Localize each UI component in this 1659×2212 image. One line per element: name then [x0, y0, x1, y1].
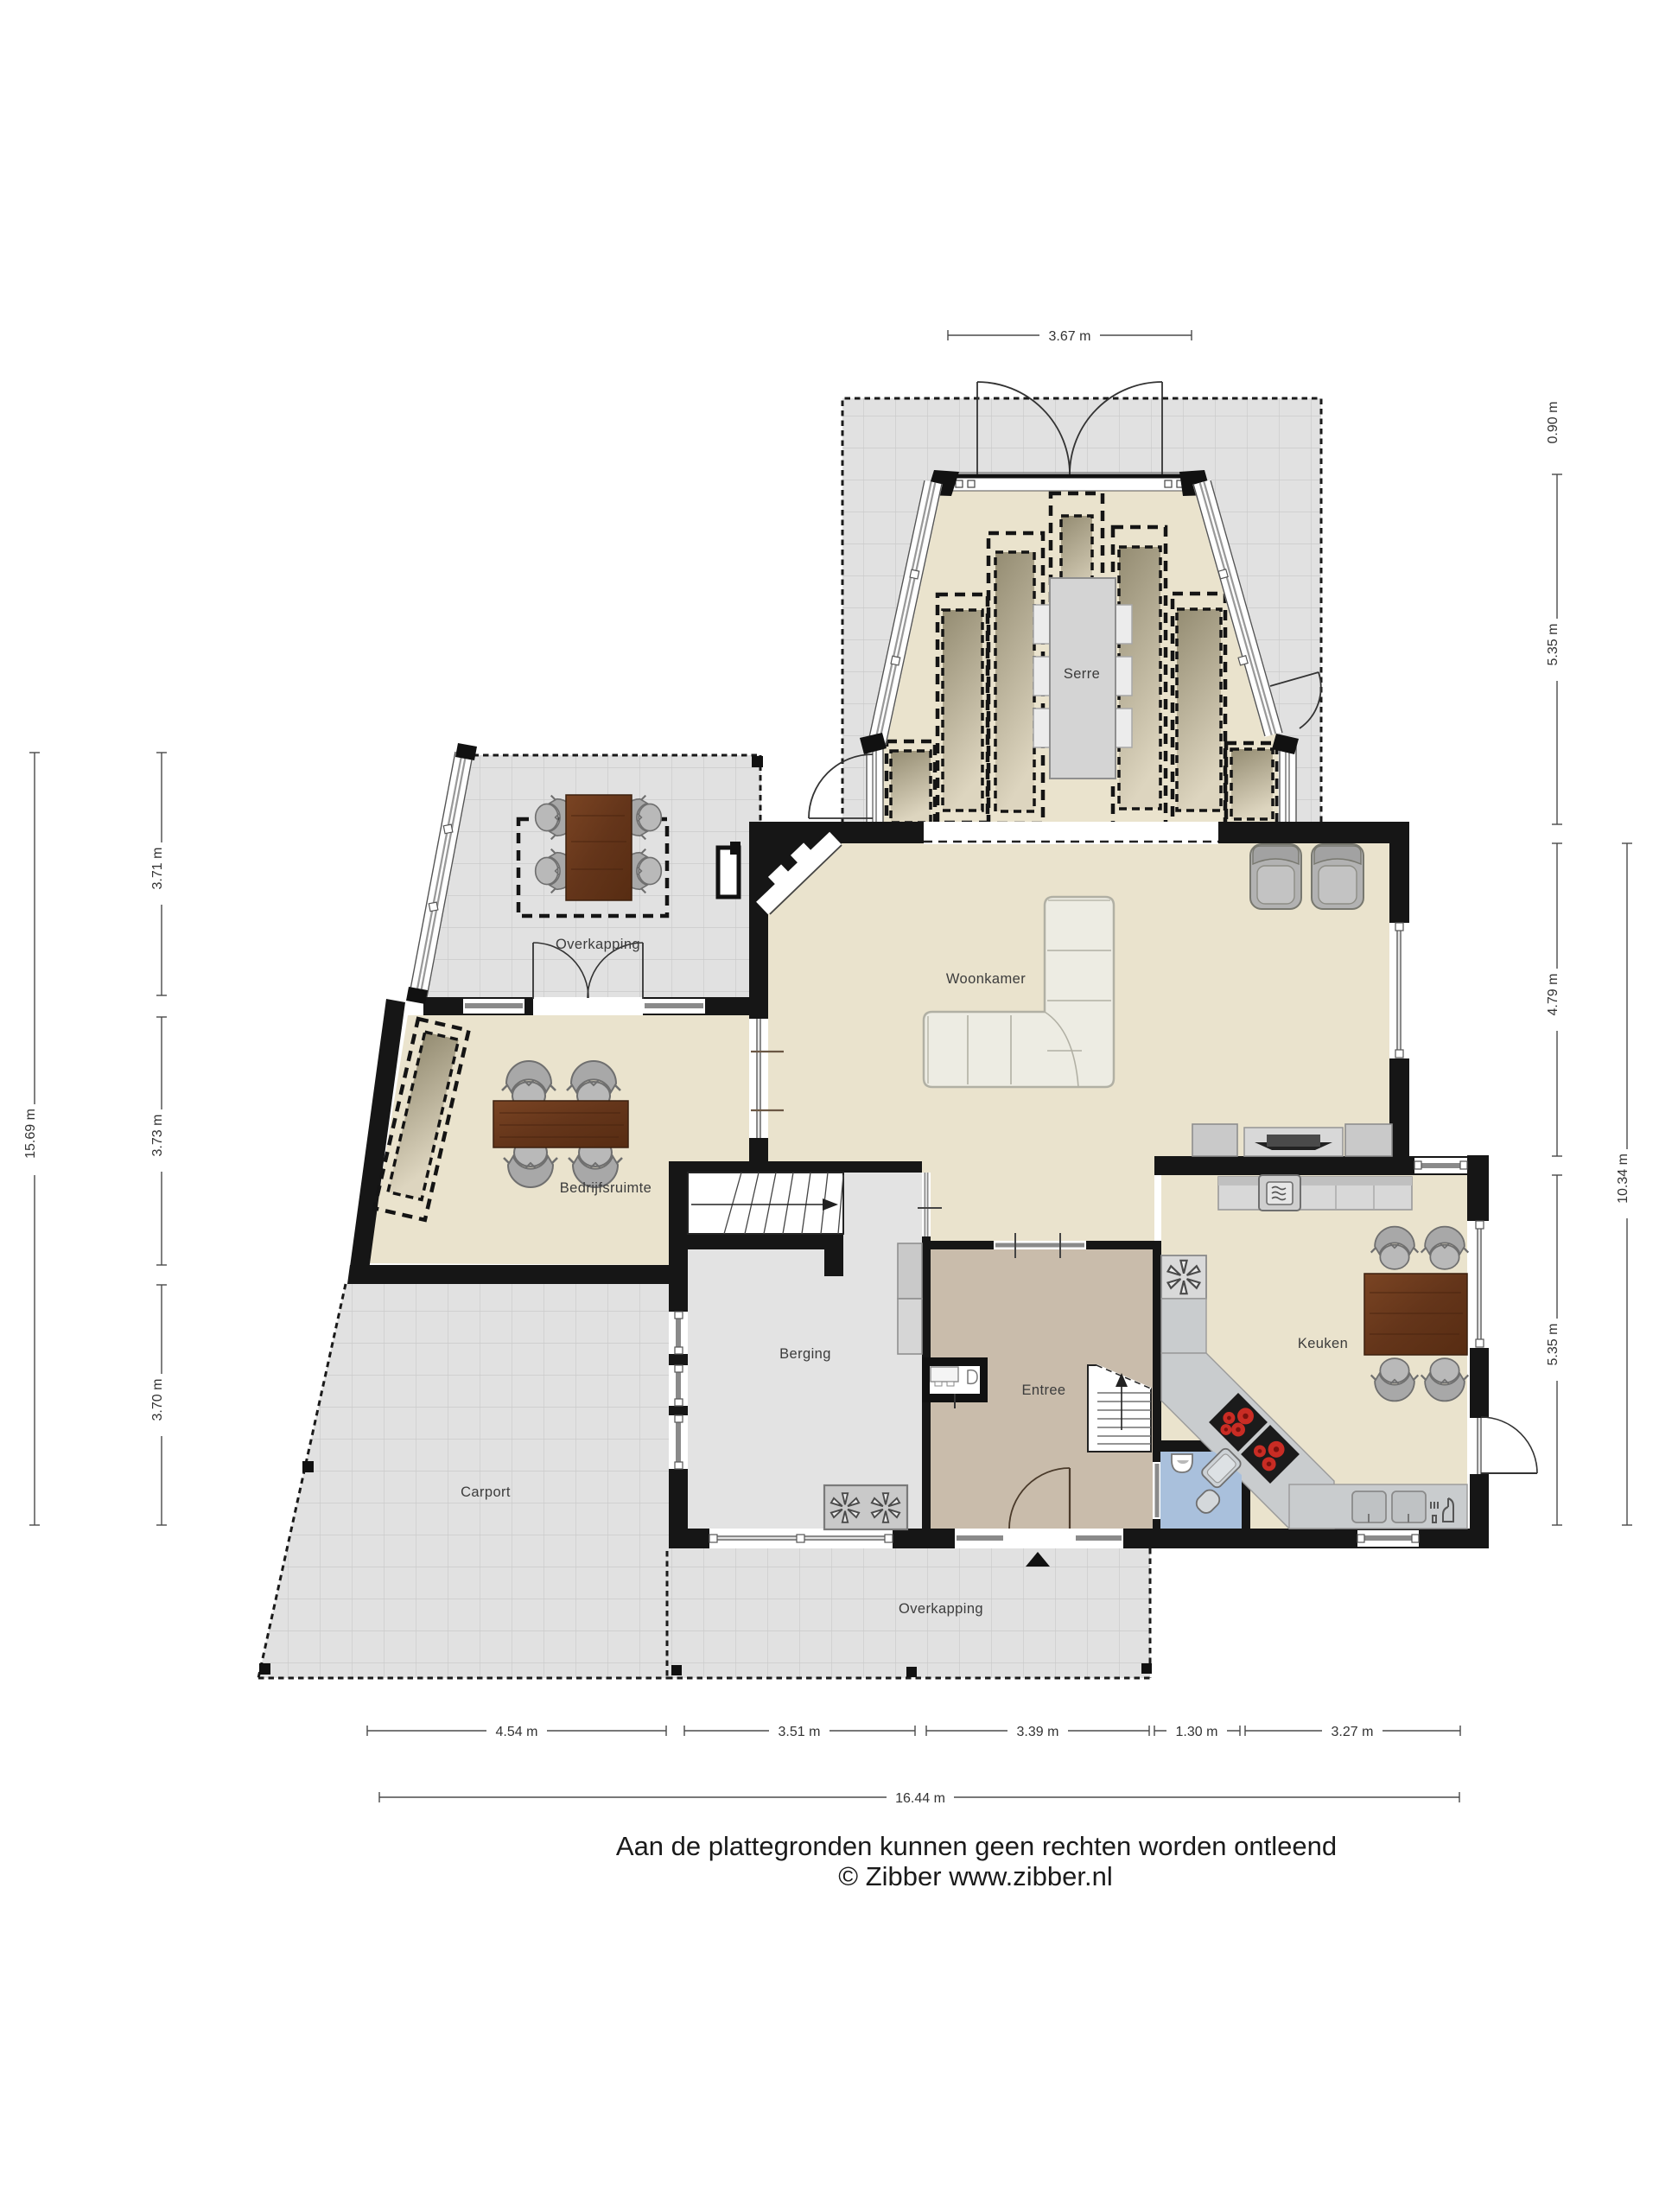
svg-text:3.67 m: 3.67 m — [1049, 329, 1091, 344]
svg-text:0.90 m: 0.90 m — [1546, 402, 1560, 444]
svg-text:16.44 m: 16.44 m — [895, 1791, 945, 1806]
svg-text:3.70 m: 3.70 m — [150, 1379, 165, 1421]
svg-text:5.35 m: 5.35 m — [1546, 624, 1560, 666]
svg-text:© Zibber www.zibber.nl: © Zibber www.zibber.nl — [838, 1861, 1112, 1891]
svg-text:5.35 m: 5.35 m — [1546, 1324, 1560, 1366]
svg-text:4.54 m: 4.54 m — [496, 1725, 538, 1739]
svg-text:Entree: Entree — [1021, 1382, 1065, 1398]
svg-text:Aan de plattegronden kunnen ge: Aan de plattegronden kunnen geen rechten… — [616, 1831, 1337, 1861]
svg-text:Serre: Serre — [1064, 666, 1100, 682]
svg-text:4.79 m: 4.79 m — [1546, 974, 1560, 1016]
svg-text:3.73 m: 3.73 m — [150, 1115, 165, 1157]
svg-text:Bedrijfsruimte: Bedrijfsruimte — [560, 1180, 652, 1196]
svg-text:Overkapping: Overkapping — [556, 937, 640, 952]
svg-text:Berging: Berging — [779, 1346, 831, 1362]
svg-text:15.69 m: 15.69 m — [23, 1109, 38, 1159]
svg-text:1.30 m: 1.30 m — [1176, 1725, 1218, 1739]
svg-text:10.34 m: 10.34 m — [1616, 1154, 1630, 1204]
svg-text:Keuken: Keuken — [1298, 1336, 1348, 1351]
svg-text:Overkapping: Overkapping — [899, 1601, 983, 1617]
svg-text:3.39 m: 3.39 m — [1017, 1725, 1059, 1739]
svg-text:3.51 m: 3.51 m — [779, 1725, 821, 1739]
svg-text:3.71 m: 3.71 m — [150, 848, 165, 890]
svg-text:3.27 m: 3.27 m — [1332, 1725, 1374, 1739]
svg-text:Carport: Carport — [461, 1484, 511, 1500]
svg-text:Woonkamer: Woonkamer — [946, 971, 1026, 987]
